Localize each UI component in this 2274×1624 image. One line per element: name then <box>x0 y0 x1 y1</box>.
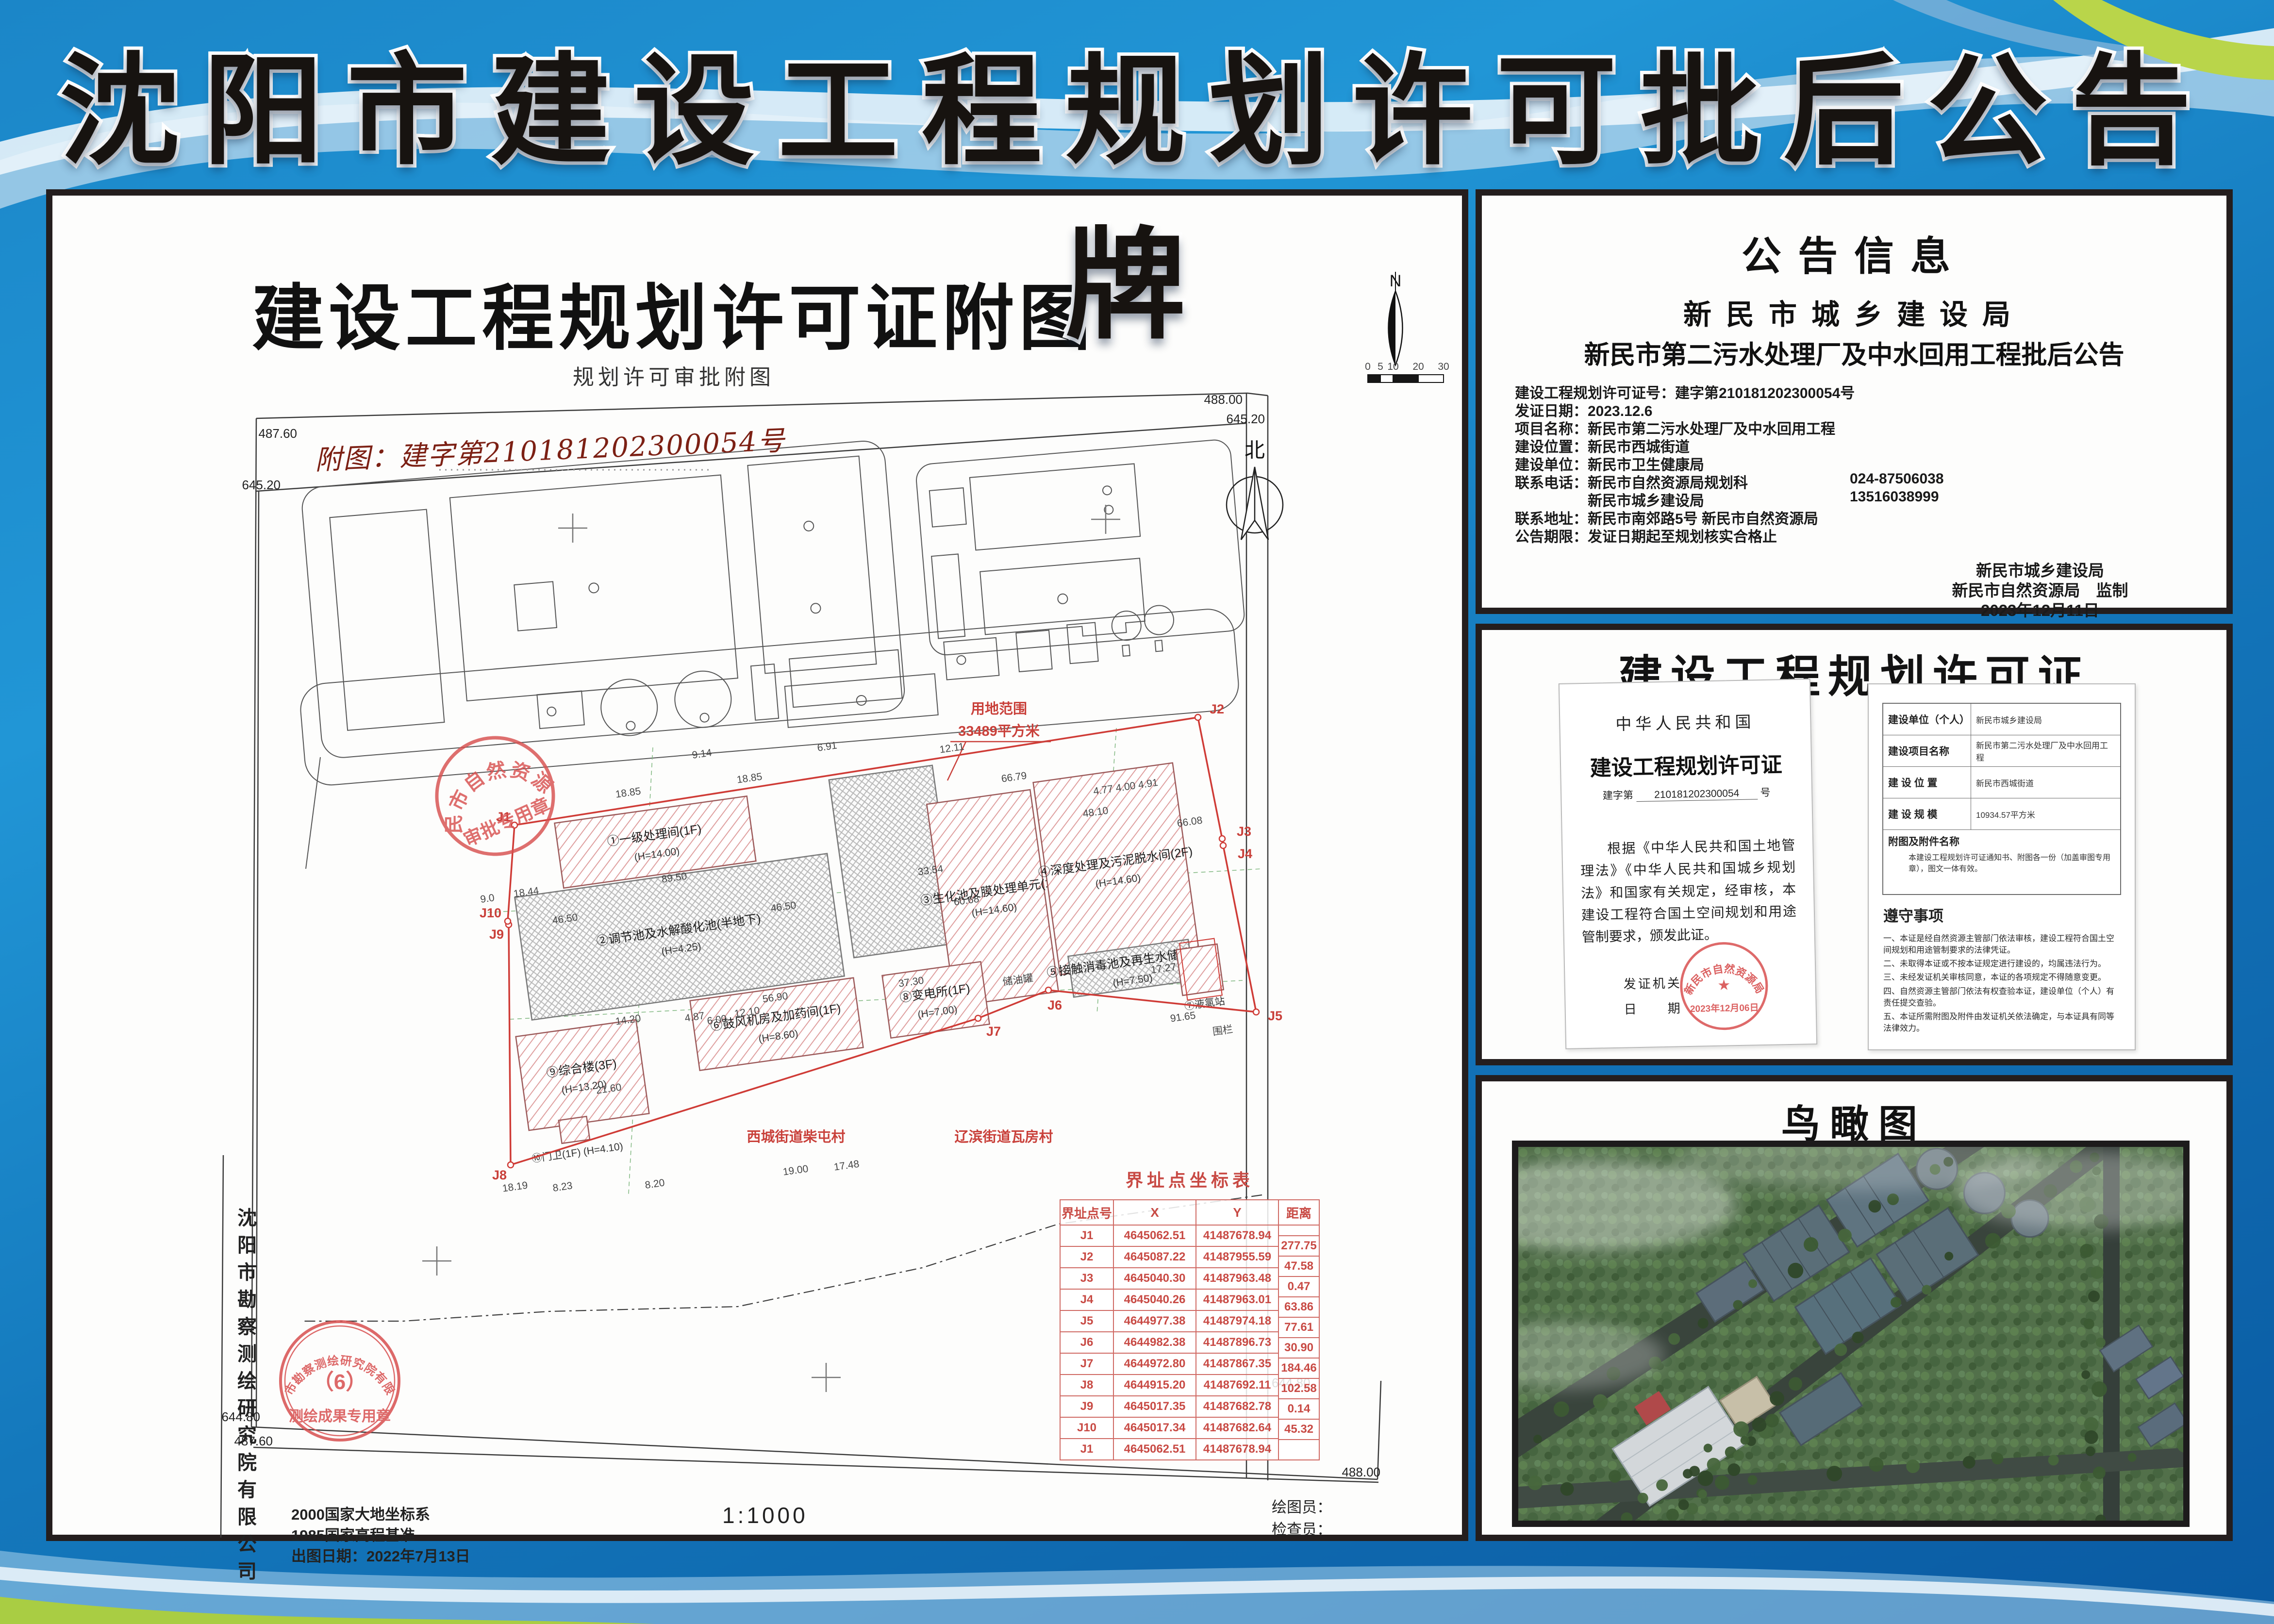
proposed-buildings: ①一级处理间(1F)(H=14.00)②调节池及水解酸化池(半地下)(H=4.2… <box>515 763 1226 1165</box>
notice-field-row: 发证日期：2023.12.6 <box>1515 399 2204 417</box>
boundary-point <box>1195 714 1201 720</box>
attachment-subtitle: 规划许可审批附图 <box>52 360 1295 391</box>
table-row: J14645062.5141487678.94277.7547.580.4763… <box>1060 1225 1319 1246</box>
aerial-view-panel: 鸟瞰图 <box>1476 1075 2233 1541</box>
tree <box>1704 1444 1712 1453</box>
tree <box>2091 1381 2107 1397</box>
checker-label: 检查员： <box>1272 1519 1332 1541</box>
attachments-label: 附图及附件名称 <box>1888 834 2115 848</box>
tree <box>1733 1300 1743 1309</box>
tree <box>1678 1499 1689 1510</box>
attachments-note: 本建设工程规划许可证通知书、附图各一份（加盖审图专用章），图文一体有效。 <box>1909 852 2115 875</box>
distance-column: 277.7547.580.4763.8677.6130.90184.46102.… <box>1278 1225 1319 1460</box>
building-footprint <box>882 961 989 1038</box>
tree <box>1869 1457 1884 1472</box>
tree <box>1788 1263 1803 1278</box>
boundary-point-label: J5 <box>1268 1009 1282 1023</box>
permit-row-value: 10934.57平方米 <box>1971 805 2120 823</box>
tree <box>2084 1319 2094 1329</box>
footer-date: 2023年12月11日 <box>1904 600 2176 620</box>
scale-bar-segment <box>1380 375 1393 382</box>
table-header-row: 界址点号 X Y 距离 <box>1060 1200 1319 1225</box>
tree <box>1752 1417 1766 1432</box>
grid-coordinate-label: 487.60 <box>258 426 297 441</box>
tree <box>1891 1297 1901 1308</box>
notice-field-row: 建设单位：新民市卫生健康局 <box>1515 453 2204 471</box>
dimension-label: 8.23 <box>552 1180 573 1193</box>
scale-tick-label: 0 <box>1365 361 1371 372</box>
col-y: Y <box>1196 1200 1278 1225</box>
tree <box>1698 1471 1713 1486</box>
permit-number: 210181202300054 <box>1636 787 1758 802</box>
scale-tick-label: 30 <box>1438 361 1449 372</box>
dimension-label: 18.85 <box>614 786 641 800</box>
boundary-point-label: J10 <box>480 906 501 920</box>
boundary-point-label: J3 <box>1237 824 1251 839</box>
poster-title: 沈阳市建设工程规划许可批后公告牌 <box>0 14 2274 362</box>
map-footnotes: 2000国家大地坐标系 1985国家高程基准 出图日期：2022年7月13日 <box>291 1504 470 1567</box>
tree <box>2080 1244 2093 1258</box>
tree <box>2085 1430 2098 1444</box>
col-dist: 距离 <box>1278 1200 1319 1225</box>
tree <box>1777 1463 1786 1472</box>
tree <box>1668 1333 1680 1345</box>
tree <box>1638 1493 1648 1504</box>
tree <box>1868 1200 1881 1212</box>
dimension-label: 14.20 <box>614 1013 641 1027</box>
survey-company-vertical-text: 沈阳市勘察测绘研究院有限公司 <box>231 1208 259 1624</box>
aerial-rendering-image <box>1512 1141 2190 1527</box>
boundary-point <box>1046 987 1051 993</box>
boundary-point <box>505 918 511 924</box>
boundary-point-label: J6 <box>1047 998 1062 1012</box>
tree <box>1533 1435 1542 1443</box>
permit-row-label: 建设单位（个人） <box>1883 704 1971 735</box>
seal-star: ★ <box>1717 977 1731 994</box>
permit-table-row: 建 设 位 置 新民市西城街道 <box>1883 767 2120 798</box>
tree <box>1963 1456 1975 1469</box>
tree <box>1733 1450 1744 1461</box>
number-suffix: 号 <box>1760 787 1770 798</box>
scale-bar-segment <box>1393 375 1418 382</box>
permit-table-row: 建设单位（个人） 新民市城乡建设局 <box>1883 704 2120 735</box>
footer-agency-1: 新民市城乡建设局 <box>1904 561 2176 580</box>
notice-field-row: 公告期限：发证日期起至规划核实合格止 <box>1515 525 2204 543</box>
grid-coordinate-label: 645.20 <box>1226 412 1265 426</box>
boundary-point-label: J9 <box>489 927 504 942</box>
boundary-point <box>1219 836 1225 842</box>
building-footprint <box>559 1116 590 1143</box>
rule-item: 四、自然资源主管部门依法有权查验本证，建设单位（个人）有责任提交查验。 <box>1883 986 2122 1009</box>
col-x: X <box>1113 1200 1196 1225</box>
grid-coordinate-label: 488.00 <box>1204 392 1243 407</box>
boundary-table-title: 界址点坐标表 <box>1060 1166 1320 1192</box>
datum-note: 2000国家大地坐标系 <box>291 1504 470 1525</box>
permit-row-value: 新民市西城街道 <box>1971 774 2120 792</box>
grid-coordinate-label: 645.20 <box>242 478 281 492</box>
field-phone: 024-87506038 <box>1850 471 1944 487</box>
field-value: 发证日期起至规划核实合格止 <box>1588 529 1777 545</box>
tree <box>1770 1391 1784 1406</box>
distance-value: 45.32 <box>1279 1420 1319 1440</box>
notice-field-row: 新民市城乡建设局13516038999 <box>1515 489 2204 507</box>
country-label: 中华人民共和国 <box>1560 708 1810 736</box>
aerial-rendering <box>1518 1147 2183 1521</box>
rules-list: 一、本证是经自然资源主管部门依法审核，建设工程符合国土空间规划和用途管制要求的法… <box>1883 933 2122 1036</box>
notice-field-row: 建设工程规划许可证号：建字第210181202300054号 <box>1515 381 2204 399</box>
dimension-label: 8.20 <box>644 1177 665 1191</box>
tree <box>2084 1417 2099 1432</box>
tree <box>1944 1252 1953 1260</box>
dimension-label: 17.48 <box>833 1159 860 1173</box>
svg-text:测绘成果专用章: 测绘成果专用章 <box>289 1408 391 1425</box>
tree <box>1554 1401 1569 1417</box>
svg-text:北: 北 <box>1245 439 1265 462</box>
scale-bar-segment <box>1368 375 1380 382</box>
distance-value: 0.47 <box>1279 1277 1319 1297</box>
issuer-seal: 新民市自然资源局 ★ 2023年12月06日 <box>1672 937 1776 1041</box>
attachment-drawing-panel: 487.60645.20488.00645.20644.80644.80487.… <box>46 189 1468 1541</box>
boundary-point-label: J4 <box>1238 846 1252 861</box>
tree <box>2128 1453 2137 1462</box>
permit-cover-document: 中华人民共和国 建设工程规划许可证 建字第 210181202300054 号 … <box>1559 679 1817 1049</box>
scale-tick-label: 20 <box>1412 361 1424 372</box>
dimension-label: 围栏 <box>1212 1024 1234 1038</box>
rule-item: 二、未取得本证或不按本证规定进行建设的，均属违法行为。 <box>1883 958 2122 970</box>
col-point: 界址点号 <box>1060 1200 1113 1225</box>
tree <box>1748 1279 1757 1288</box>
svg-text:33489平方米: 33489平方米 <box>958 723 1040 739</box>
tree <box>2096 1338 2106 1347</box>
boundary-point <box>1253 1009 1259 1015</box>
tree <box>1689 1466 1700 1476</box>
rules-title: 遵守事项 <box>1883 904 1943 926</box>
boundary-coordinate-table: 界址点坐标表 界址点号 X Y 距离 J14645062.5141487678.… <box>1060 1166 1320 1460</box>
tree <box>2091 1266 2104 1279</box>
distance-value: 0.14 <box>1279 1399 1319 1420</box>
notice-fields: 建设工程规划许可证号：建字第210181202300054号发证日期：2023.… <box>1515 381 2204 543</box>
drafter-label: 绘图员： <box>1272 1496 1332 1519</box>
street-label-left: 西城街道柴屯村 <box>747 1128 845 1145</box>
map-scale: 1:1000 <box>722 1502 808 1528</box>
permit-table-row: 建设项目名称 新民市第二污水处理厂及中水回用工程 <box>1883 735 2120 767</box>
tree <box>1826 1466 1842 1481</box>
permit-row-value: 新民市城乡建设局 <box>1971 711 2120 729</box>
boundary-point-label: J7 <box>986 1024 1001 1039</box>
tree <box>1748 1475 1758 1485</box>
tree <box>1733 1421 1749 1437</box>
tree <box>1698 1490 1707 1498</box>
dimension-label: 66.79 <box>1000 770 1027 785</box>
scale-bar: 05102030 <box>1365 361 1449 382</box>
tree <box>1609 1470 1621 1483</box>
notice-field-row: 项目名称：新民市第二污水处理厂及中水回用工程 <box>1515 417 2204 435</box>
building-footprint <box>516 1020 649 1130</box>
attachments-row: 附图及附件名称 本建设工程规划许可证通知书、附图各一份（加盖审图专用章），图文一… <box>1883 829 2120 894</box>
seal-date: 2023年12月06日 <box>1690 1002 1759 1014</box>
tree <box>1852 1332 1864 1343</box>
distance-value: 77.61 <box>1279 1318 1319 1338</box>
scale-tick-label: 10 <box>1387 361 1398 372</box>
permit-row-value: 新民市第二污水处理厂及中水回用工程 <box>1971 736 2120 766</box>
boundary-point <box>1220 843 1226 848</box>
permit-table-row: 建 设 规 模 10934.57平方米 <box>1883 798 2120 829</box>
tree <box>2080 1481 2091 1492</box>
permit-number-line: 建字第 210181202300054 号 <box>1561 784 1811 803</box>
permit-fields-table: 建设单位（个人） 新民市城乡建设局建设项目名称 新民市第二污水处理厂及中水回用工… <box>1882 703 2121 895</box>
plot-date-note: 出图日期：2022年7月13日 <box>291 1546 470 1567</box>
distance-value: 277.75 <box>1279 1236 1319 1257</box>
tree <box>1593 1394 1608 1409</box>
tree <box>1834 1343 1847 1356</box>
notice-field-row: 联系电话：新民市自然资源局规划科024-87506038 <box>1515 471 2204 489</box>
scale-tick-label: 5 <box>1378 361 1383 372</box>
distance-value: 184.46 <box>1279 1359 1319 1379</box>
permit-row-label: 建 设 位 置 <box>1883 767 1971 798</box>
tree <box>1656 1479 1668 1491</box>
tree <box>1838 1229 1852 1243</box>
boundary-point <box>975 1015 981 1021</box>
rule-item: 五、本证所需附图及附件由发证机关依法确定，与本证具有同等法律效力。 <box>1883 1011 2122 1034</box>
tree <box>1528 1475 1543 1490</box>
permit-body-text: 根据《中华人民共和国土地管理法》《中华人民共和国城乡规划法》和国家有关规定，经审… <box>1580 834 1797 948</box>
dimension-label: 19.00 <box>782 1163 809 1178</box>
distance-value: 30.90 <box>1279 1338 1319 1359</box>
dimension-label: 9.0 <box>480 892 495 905</box>
dimension-label: 9.14 <box>691 747 713 761</box>
tree <box>2086 1446 2095 1456</box>
permit-row-label: 建设项目名称 <box>1883 735 1971 766</box>
boundary-point-label: J2 <box>1210 702 1224 716</box>
tree <box>2048 1455 2059 1465</box>
svg-text:审批专用章: 审批专用章 <box>461 794 553 851</box>
north-compass-icon: 北 <box>1227 439 1283 540</box>
notice-footer: 新民市城乡建设局 新民市自然资源局 监制 2023年12月11日 <box>1904 561 2176 620</box>
tree <box>1715 1475 1729 1490</box>
rule-item: 一、本证是经自然资源主管部门依法审核，建设工程符合国土空间规划和用途管制要求的法… <box>1883 933 2122 956</box>
cover-title: 建设工程规划许可证 <box>1560 746 1811 782</box>
boundary-point-label: J8 <box>492 1168 507 1182</box>
tree <box>1560 1482 1574 1496</box>
tree <box>1707 1458 1721 1472</box>
distance-value: 102.58 <box>1279 1379 1319 1399</box>
tree <box>1698 1318 1709 1328</box>
tree <box>1906 1459 1920 1473</box>
staff-signoff: 绘图员： 检查员： <box>1272 1496 1332 1541</box>
tree <box>1985 1233 2001 1248</box>
tree <box>1789 1377 1802 1391</box>
field-phone: 13516038999 <box>1850 489 1939 505</box>
street-label-right: 辽滨街道瓦房村 <box>954 1128 1053 1145</box>
boundary-point <box>508 1162 514 1168</box>
tree <box>1922 1285 1931 1294</box>
grid-coordinate-label: 488.00 <box>1342 1465 1380 1479</box>
dimension-label: 91.65 <box>1169 1010 1196 1025</box>
permit-certificate-panel: 建设工程规划许可证 NO. 中华人民共和国 建设工程规划许可证 建字第 2101… <box>1476 624 2233 1065</box>
tree <box>2081 1370 2090 1379</box>
notice-board-poster: 沈阳市建设工程规划许可批后公告牌 <box>0 0 2274 1624</box>
footer-agency-2: 新民市自然资源局 监制 <box>1904 580 2176 600</box>
permit-inner-page: 建设单位（个人） 新民市城乡建设局建设项目名称 新民市第二污水处理厂及中水回用工… <box>1868 683 2136 1050</box>
distance-value: 47.58 <box>1279 1257 1319 1277</box>
tree <box>2093 1467 2106 1479</box>
tree <box>1887 1193 1899 1205</box>
dimension-label: 18.85 <box>736 771 763 786</box>
elevation-note: 1985国家高程基准 <box>291 1525 470 1546</box>
tree <box>1804 1237 1818 1252</box>
field-label: 公告期限： <box>1515 529 1588 545</box>
notice-field-row: 建设位置：新民市西城街道 <box>1515 435 2204 453</box>
permit-row-label: 建 设 规 模 <box>1883 798 1971 829</box>
distance-value: 63.86 <box>1279 1297 1319 1318</box>
tree <box>2088 1291 2100 1302</box>
dimension-label: 6.91 <box>816 740 838 753</box>
svg-text:（6）: （6） <box>313 1370 367 1394</box>
tree <box>1741 1436 1749 1445</box>
tree <box>1765 1414 1779 1427</box>
number-prefix: 建字第 <box>1603 790 1633 801</box>
tree <box>1727 1463 1740 1476</box>
notice-field-row: 联系地址：新民市南郊路5号 新民市自然资源局 <box>1515 507 2204 525</box>
svg-text:用地范围: 用地范围 <box>971 701 1027 717</box>
scale-bar-segment <box>1418 375 1444 382</box>
tree <box>1992 1453 2003 1464</box>
rule-item: 三、未经发证机关审核同意，本证的各项规定不得随意变更。 <box>1883 972 2122 983</box>
